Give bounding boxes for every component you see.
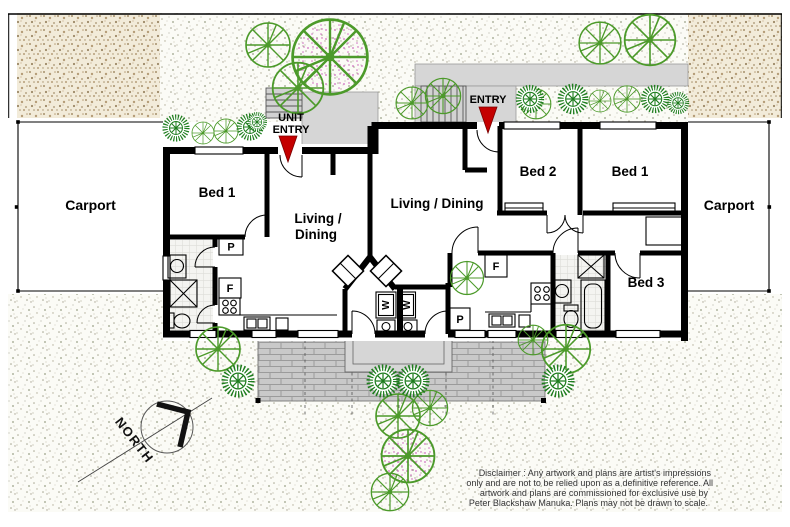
tree-icon [273,63,324,114]
tree-icon [192,122,214,144]
bed2-label: Bed 2 [520,164,557,179]
pantry-right-label: P [456,314,463,326]
living-dining-left-label-line2: Dining [295,227,337,242]
driveway-right [688,13,782,118]
unit-entry-label-line2: ENTRY [273,124,311,136]
carport-left-label: Carport [65,197,116,213]
building [163,122,688,341]
tree-icon [614,86,640,112]
tree-icon [589,90,611,112]
shrub-icon [545,368,572,395]
washer-left-label: W [381,300,392,310]
shrub-icon [669,94,687,112]
carport-right-label: Carport [704,197,755,213]
shrub-icon [165,117,187,139]
bed1-left-label: Bed 1 [199,185,236,200]
tree-icon [196,327,240,371]
tree-icon [542,325,590,373]
fridge-right-label: F [493,261,500,273]
tree-icon [425,78,460,113]
disclaimer-line1: Disclaimer : Any artwork and plans are a… [479,468,712,478]
tree-icon [625,15,676,66]
disclaimer-block: Disclaimer : Any artwork and plans are a… [466,468,713,508]
living-dining-right-label: Living / Dining [391,196,484,211]
pantry-left-label: P [227,242,234,254]
deck-steps [345,338,452,372]
shrub-icon [561,87,586,112]
washer-right-label: W [402,300,413,310]
shrub-icon [370,368,397,395]
shrub-icon [249,114,265,130]
disclaimer-line4: Peter Blackshaw Manuka. Plans may not be… [469,498,708,508]
entry-label: ENTRY [470,94,508,106]
tree-icon [246,23,290,67]
tree-icon [451,262,484,295]
front-path-right [415,64,688,86]
tree-icon [518,325,548,355]
driveway-left [17,13,160,118]
bed3-label: Bed 3 [628,275,665,290]
unit-entry-label-line1: UNIT [278,112,304,124]
shrub-icon [225,368,252,395]
shrub-icon [644,88,667,111]
tree-icon [396,87,428,119]
entry-porch-left [302,92,378,148]
tree-icon [371,473,408,510]
floor-plan-canvas: Carport Bed 1 Living / Dining Living / D… [0,0,790,527]
floor-plan-page: Carport Bed 1 Living / Dining Living / D… [0,0,790,527]
disclaimer-line3: artwork and plans are commissioned for e… [480,488,709,498]
tree-icon [579,22,621,64]
disclaimer-line2: only and are not to be relied upon as a … [466,478,713,488]
living-dining-left-label-line1: Living / [294,211,341,226]
shrub-icon [400,368,427,395]
shrub-icon [519,88,542,111]
tree-icon [214,119,238,143]
fridge-left-label: F [227,283,234,295]
bed1-right-label: Bed 1 [612,164,649,179]
